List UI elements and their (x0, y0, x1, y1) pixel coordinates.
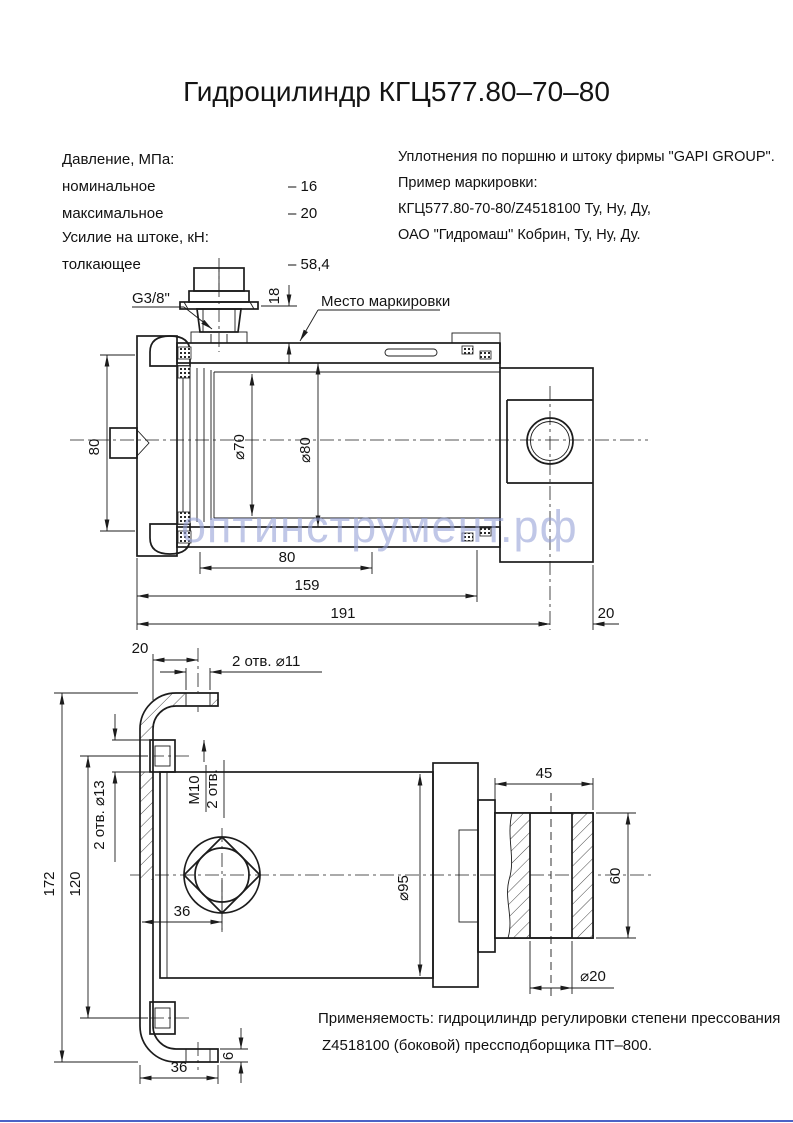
dim-159-label: 159 (294, 577, 319, 594)
dim-60: 60 (596, 813, 636, 938)
dim-80-left-label: 80 (86, 439, 103, 456)
dim-36-socket: 36 (142, 880, 222, 930)
dim-172-label: 172 (41, 871, 58, 896)
dim-d80-label: ⌀80 (297, 437, 314, 463)
dim-6: 6 (220, 1028, 248, 1083)
callout-m10: M10 2 отв. (186, 740, 224, 818)
application-line: Z4518100 (боковой) прессподборщика ПТ–80… (322, 1037, 652, 1054)
watermark: оптинструмент.рф (181, 501, 578, 553)
marking-callout: Место маркировки (300, 293, 450, 341)
port-fitting (180, 268, 258, 343)
marking-label: Место маркировки (321, 293, 450, 310)
dim-120-label: 120 (67, 871, 84, 896)
top-view-drawing: G3/8" Место маркировки 18 80 (70, 258, 648, 630)
dim-45-label: 45 (536, 765, 553, 782)
dim-holes-11: 2 отв. ⌀11 (160, 653, 322, 690)
dim-191-label: 191 (330, 605, 355, 622)
ring-groove (385, 349, 437, 356)
dim-flange-20: 20 (132, 640, 198, 700)
dim-172: 172 (41, 693, 138, 1062)
port-thread-label: G3/8" (132, 290, 170, 307)
rod-eye (495, 813, 593, 938)
m10-label: M10 (186, 775, 203, 804)
dim-36-foot-label: 36 (171, 1059, 188, 1076)
dim-20-right-label: 20 (598, 605, 615, 622)
dim-36-label: 36 (174, 903, 191, 920)
technical-drawing: G3/8" Место маркировки 18 80 (0, 0, 793, 1123)
page-edge-rule (0, 1120, 793, 1122)
holes-13-label: 2 отв. ⌀13 (91, 780, 108, 849)
application-line: Применяемость: гидроцилиндр регулировки … (318, 1010, 780, 1027)
dim-d20-label: ⌀20 (580, 968, 606, 985)
dim-18-label: 18 (266, 288, 283, 305)
holes-11-label: 2 отв. ⌀11 (232, 653, 300, 670)
dim-rod-diameter: ⌀70 (231, 374, 252, 516)
drawing-sheet: Гидроцилиндр КГЦ577.80–70–80 Давление, М… (0, 0, 793, 1123)
dim-18: 18 (261, 285, 297, 364)
dim-d95-label: ⌀95 (395, 875, 412, 901)
collar-detail (459, 830, 478, 922)
dim-45: 45 (495, 765, 593, 810)
dim-6-label: 6 (220, 1052, 237, 1060)
dim-60-label: 60 (607, 868, 624, 885)
dim-d70-label: ⌀70 (231, 434, 248, 460)
rod-neck (478, 800, 495, 952)
dim-20-label: 20 (132, 640, 149, 657)
dim-d20: ⌀20 (530, 941, 614, 994)
mounting-bracket (139, 692, 218, 1062)
gland-step (452, 333, 500, 343)
m10-qty-label: 2 отв. (204, 769, 221, 809)
locating-pin (110, 428, 137, 458)
